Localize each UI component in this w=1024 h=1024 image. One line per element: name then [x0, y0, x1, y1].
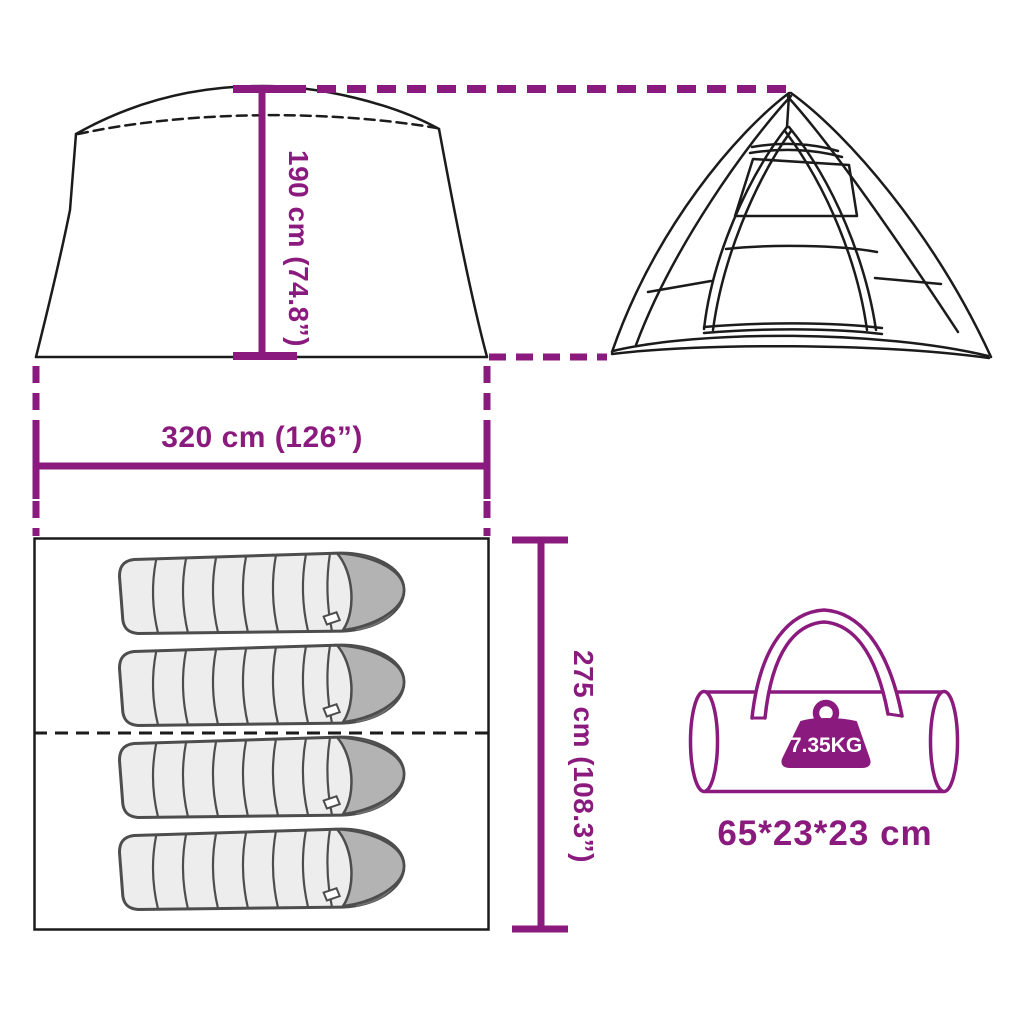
diagram-artwork — [0, 0, 1024, 1024]
width-dimension-label: 320 cm (126”) — [86, 423, 438, 453]
bag-size-label: 65*23*23 cm — [695, 816, 955, 851]
product-dimension-diagram: 190 cm (74.8”) 320 cm (126”) 275 cm (108… — [0, 0, 1024, 1024]
sleeping-bag-icon — [119, 827, 405, 912]
depth-dimension-label: 275 cm (108.3”) — [569, 650, 597, 863]
tent-side-crown — [76, 86, 439, 134]
height-dimension-label: 190 cm (74.8”) — [284, 150, 312, 347]
tent-side-left-edge — [36, 134, 76, 357]
depth-dimension-line — [512, 540, 568, 929]
tent-side-seam-dashed — [78, 115, 437, 134]
sleeping-bag-icon — [119, 643, 405, 728]
tent-front-view — [612, 93, 991, 358]
sleeping-bag-icon — [119, 551, 405, 636]
tent-side-right-edge — [439, 129, 487, 357]
bag-weight-label: 7.35KG — [782, 735, 870, 756]
sleeping-bag-icon — [119, 735, 405, 820]
carry-bag-icon — [691, 610, 958, 792]
floor-plan — [34, 539, 489, 930]
